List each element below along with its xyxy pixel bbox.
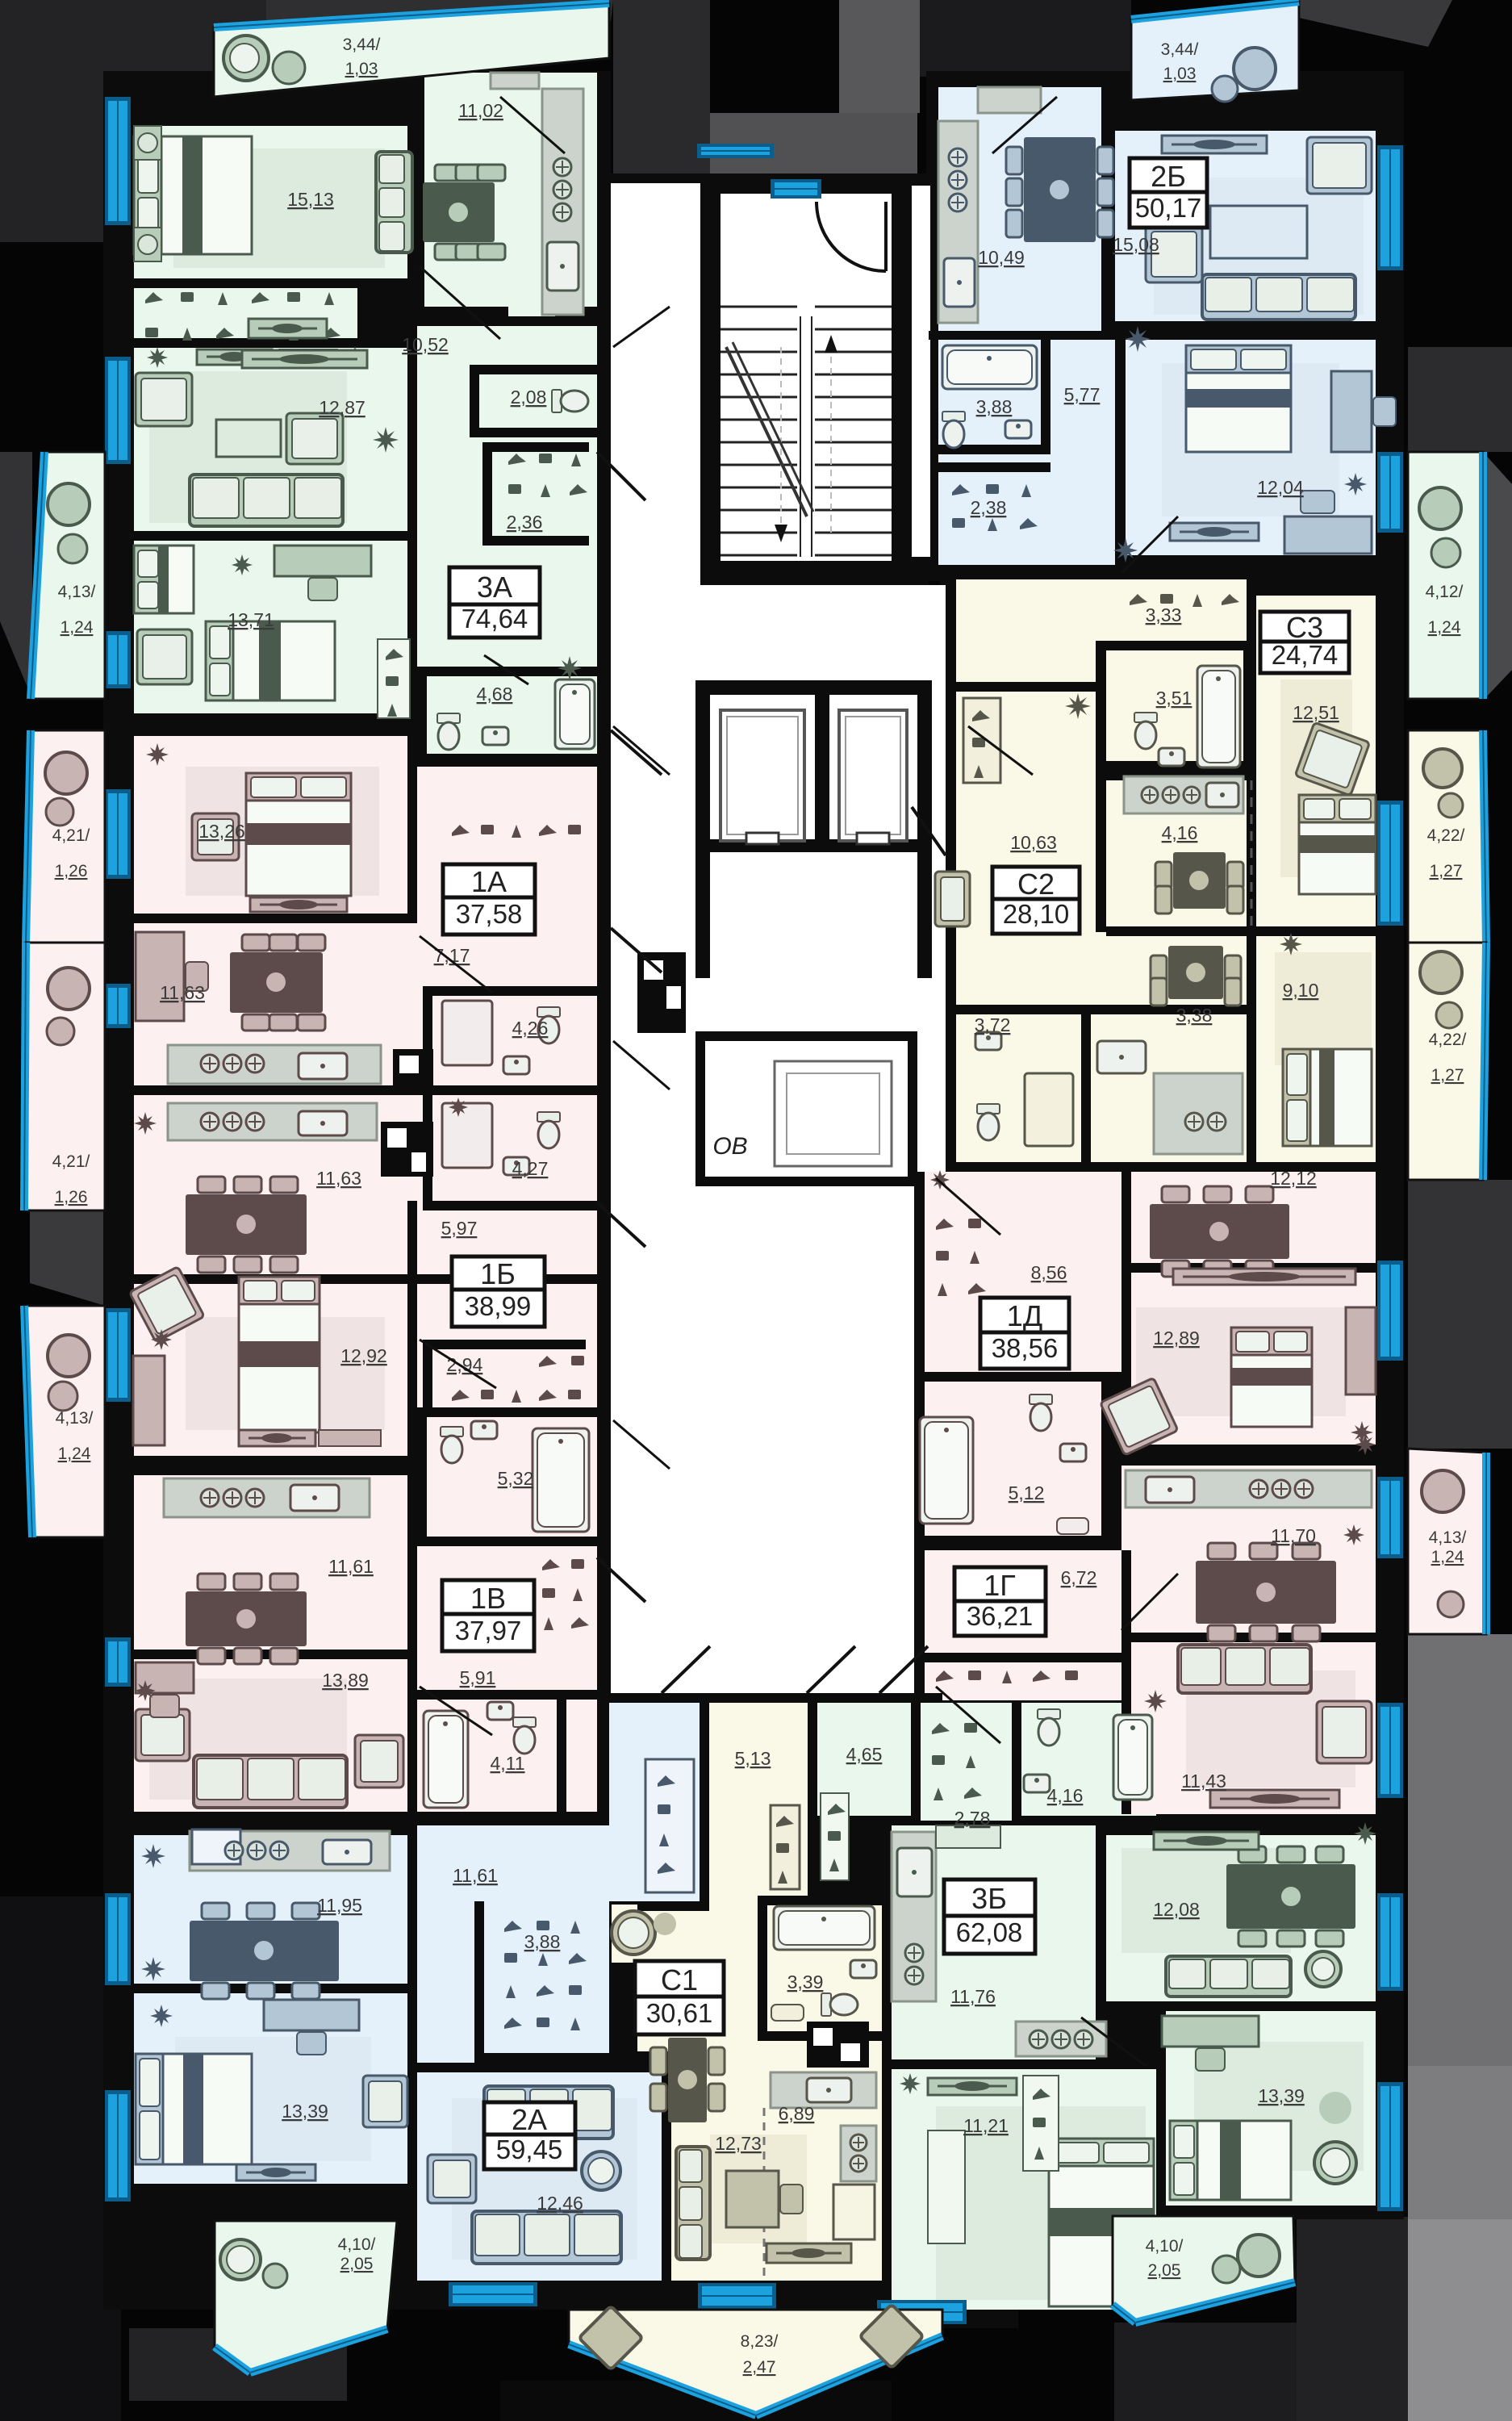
svg-text:9,10: 9,10 [1283, 980, 1319, 1001]
svg-text:6,72: 6,72 [1061, 1567, 1097, 1588]
svg-text:38,99: 38,99 [465, 1291, 532, 1321]
svg-text:4,27: 4,27 [512, 1158, 549, 1179]
svg-text:13,26: 13,26 [198, 821, 245, 842]
svg-text:4,12/: 4,12/ [1426, 583, 1464, 601]
svg-text:1,27: 1,27 [1430, 862, 1463, 880]
svg-text:11,63: 11,63 [316, 1168, 361, 1189]
svg-text:4,68: 4,68 [477, 684, 513, 705]
svg-text:3,44/: 3,44/ [1161, 40, 1199, 59]
svg-text:30,61: 30,61 [646, 1998, 713, 2028]
svg-text:3,51: 3,51 [1156, 688, 1192, 709]
svg-text:4,16: 4,16 [1047, 1785, 1084, 1806]
svg-text:2,08: 2,08 [511, 387, 547, 408]
svg-text:1,24: 1,24 [61, 618, 94, 637]
svg-text:13,39: 13,39 [282, 2101, 328, 2122]
svg-text:12,73: 12,73 [715, 2133, 762, 2154]
svg-text:3А: 3А [477, 571, 512, 604]
svg-text:4,13/: 4,13/ [1429, 1528, 1467, 1547]
svg-text:1Б: 1Б [480, 1257, 516, 1290]
svg-text:12,08: 12,08 [1153, 1899, 1200, 1920]
svg-text:5,91: 5,91 [460, 1667, 496, 1688]
svg-text:11,76: 11,76 [950, 1986, 996, 2007]
svg-text:1В: 1В [470, 1582, 506, 1615]
svg-text:12,87: 12,87 [319, 397, 365, 418]
svg-text:10,52: 10,52 [402, 334, 449, 355]
svg-text:11,95: 11,95 [317, 1895, 362, 1916]
svg-text:5,77: 5,77 [1064, 384, 1101, 405]
svg-text:10,63: 10,63 [1010, 832, 1057, 853]
svg-text:5,12: 5,12 [1009, 1482, 1045, 1503]
svg-text:2А: 2А [512, 2103, 547, 2136]
svg-text:ОВ: ОВ [712, 1133, 747, 1160]
svg-text:36,21: 36,21 [967, 1601, 1034, 1631]
svg-text:11,63: 11,63 [160, 982, 205, 1003]
svg-text:4,10/: 4,10/ [1146, 2237, 1184, 2256]
svg-text:4,10/: 4,10/ [338, 2235, 376, 2254]
svg-text:11,61: 11,61 [328, 1556, 374, 1577]
svg-text:12,46: 12,46 [537, 2193, 583, 2214]
svg-text:11,70: 11,70 [1271, 1525, 1316, 1546]
svg-text:6,89: 6,89 [779, 2103, 815, 2124]
svg-text:3,33: 3,33 [1146, 604, 1182, 625]
svg-text:10,49: 10,49 [978, 247, 1025, 268]
svg-text:1Г: 1Г [984, 1569, 1016, 1602]
svg-text:13,89: 13,89 [322, 1670, 369, 1691]
svg-text:5,97: 5,97 [441, 1218, 478, 1239]
svg-text:5,13: 5,13 [735, 1748, 771, 1769]
svg-text:2,05: 2,05 [340, 2255, 374, 2273]
svg-text:2,36: 2,36 [507, 512, 543, 533]
svg-text:1,27: 1,27 [1431, 1066, 1464, 1085]
svg-text:1,03: 1,03 [345, 60, 378, 78]
svg-text:11,61: 11,61 [453, 1865, 498, 1886]
svg-text:1Д: 1Д [1007, 1299, 1042, 1332]
svg-text:С3: С3 [1286, 611, 1323, 644]
svg-text:8,56: 8,56 [1031, 1262, 1067, 1283]
svg-text:3,39: 3,39 [787, 1972, 824, 1992]
svg-text:59,45: 59,45 [496, 2135, 563, 2164]
svg-text:2,94: 2,94 [447, 1354, 483, 1375]
svg-text:С1: С1 [661, 1963, 698, 1997]
svg-text:1,24: 1,24 [1428, 618, 1461, 637]
svg-text:13,71: 13,71 [228, 609, 274, 630]
svg-text:5,32: 5,32 [498, 1468, 534, 1489]
svg-text:4,21/: 4,21/ [52, 1152, 90, 1171]
svg-text:4,65: 4,65 [846, 1744, 883, 1765]
svg-text:1А: 1А [471, 865, 507, 898]
svg-text:62,08: 62,08 [956, 1917, 1023, 1947]
svg-text:4,22/: 4,22/ [1429, 1031, 1467, 1049]
svg-text:4,26: 4,26 [512, 1018, 549, 1039]
svg-text:2,38: 2,38 [971, 497, 1007, 518]
svg-text:37,58: 37,58 [456, 899, 523, 929]
svg-text:12,04: 12,04 [1257, 477, 1304, 498]
svg-text:3,88: 3,88 [524, 1931, 561, 1952]
svg-text:7,17: 7,17 [434, 945, 470, 966]
svg-text:2,47: 2,47 [743, 2358, 776, 2377]
svg-text:4,22/: 4,22/ [1427, 826, 1465, 845]
svg-text:12,92: 12,92 [340, 1345, 387, 1366]
svg-text:11,43: 11,43 [1181, 1771, 1226, 1792]
svg-text:3,72: 3,72 [975, 1014, 1011, 1035]
svg-text:4,13/: 4,13/ [56, 1409, 94, 1428]
svg-text:1,24: 1,24 [58, 1445, 91, 1463]
svg-text:1,26: 1,26 [55, 1188, 88, 1206]
svg-text:24,74: 24,74 [1272, 640, 1339, 670]
svg-text:1,24: 1,24 [1431, 1548, 1464, 1566]
svg-text:4,13/: 4,13/ [58, 583, 96, 601]
svg-text:2Б: 2Б [1151, 160, 1186, 193]
svg-text:12,51: 12,51 [1293, 702, 1339, 723]
svg-text:3Б: 3Б [971, 1882, 1007, 1915]
svg-text:4,21/: 4,21/ [52, 826, 90, 845]
svg-text:3,44/: 3,44/ [343, 36, 381, 54]
svg-text:8,23/: 8,23/ [741, 2332, 779, 2351]
svg-text:11,21: 11,21 [963, 2115, 1009, 2136]
svg-text:2,05: 2,05 [1148, 2261, 1181, 2280]
svg-text:1,26: 1,26 [55, 862, 88, 880]
svg-text:С2: С2 [1017, 868, 1055, 901]
svg-text:2,78: 2,78 [954, 1808, 991, 1829]
svg-text:74,64: 74,64 [462, 604, 528, 633]
svg-text:3,88: 3,88 [976, 396, 1013, 417]
svg-text:15,13: 15,13 [287, 189, 334, 210]
svg-text:37,97: 37,97 [455, 1616, 522, 1645]
svg-text:4,16: 4,16 [1162, 822, 1198, 843]
svg-text:1,03: 1,03 [1163, 65, 1197, 83]
svg-text:12,12: 12,12 [1270, 1168, 1317, 1189]
svg-text:13,39: 13,39 [1258, 2085, 1305, 2106]
svg-text:50,17: 50,17 [1135, 193, 1202, 223]
svg-text:12,89: 12,89 [1153, 1328, 1200, 1348]
svg-text:3,38: 3,38 [1176, 1005, 1213, 1026]
svg-text:38,56: 38,56 [992, 1333, 1059, 1363]
svg-text:11,02: 11,02 [458, 100, 503, 121]
svg-text:4,11: 4,11 [490, 1753, 524, 1774]
svg-text:28,10: 28,10 [1003, 899, 1070, 929]
svg-text:15,08: 15,08 [1113, 234, 1159, 255]
